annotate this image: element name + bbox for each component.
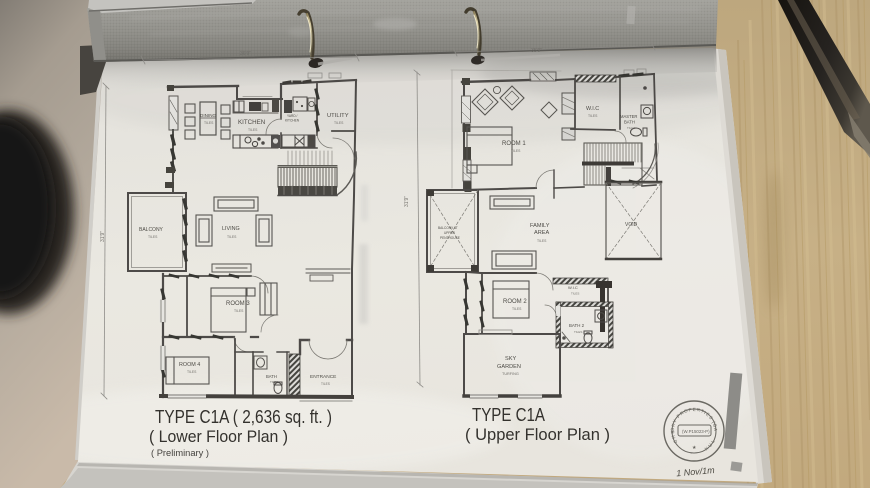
svg-text:31'9": 31'9" (404, 196, 410, 207)
svg-text:TURFING: TURFING (502, 372, 519, 376)
svg-text:( Preliminary ): ( Preliminary ) (151, 448, 209, 458)
svg-text:TILES: TILES (148, 235, 158, 239)
svg-text:ROOM 2: ROOM 2 (503, 299, 527, 305)
svg-text:BATH: BATH (624, 120, 635, 125)
svg-text:ROOM 3: ROOM 3 (226, 301, 250, 307)
svg-text:TILES: TILES (588, 114, 598, 118)
svg-text:TILES: TILES (334, 121, 344, 125)
svg-text:DINING: DINING (200, 113, 217, 118)
svg-text:TILES: TILES (187, 370, 197, 374)
svg-text:★: ★ (692, 445, 697, 451)
svg-text:FAMILY: FAMILY (530, 223, 550, 229)
svg-text:TILES: TILES (511, 149, 521, 153)
svg-text:ROOM 4: ROOM 4 (179, 362, 200, 368)
svg-text:UPPER: UPPER (444, 231, 456, 235)
svg-text:TILES: TILES (227, 235, 237, 239)
svg-text:UTILITY: UTILITY (327, 113, 349, 119)
svg-text:W.I.C: W.I.C (586, 106, 599, 112)
svg-text:KITCHEN: KITCHEN (285, 119, 300, 123)
svg-text:(W.P15023-P): (W.P15023-P) (682, 429, 710, 434)
svg-text:ROOM 1: ROOM 1 (502, 141, 526, 147)
svg-text:ENTRANCE: ENTRANCE (310, 374, 336, 380)
svg-text:TILES: TILES (321, 382, 330, 386)
svg-text:36'9": 36'9" (240, 51, 251, 57)
svg-text:SKY: SKY (505, 356, 516, 362)
svg-text:TILES: TILES (204, 121, 214, 125)
svg-text:W.I.C: W.I.C (568, 285, 578, 290)
svg-text:MASTER: MASTER (620, 114, 637, 119)
svg-text:BALCONY: BALCONY (139, 227, 164, 233)
svg-text:AREA: AREA (534, 230, 550, 236)
svg-text:YARD /: YARD / (287, 114, 298, 118)
svg-text:BATH: BATH (266, 374, 277, 379)
svg-text:PENTHOUSE: PENTHOUSE (440, 236, 460, 240)
svg-text:( Lower Floor Plan ): ( Lower Floor Plan ) (149, 427, 288, 446)
svg-text:BATH 2: BATH 2 (569, 323, 585, 328)
svg-text:VOID: VOID (625, 222, 638, 228)
svg-text:LIVING: LIVING (222, 226, 240, 232)
svg-text:BALCONY AT: BALCONY AT (438, 226, 458, 230)
svg-text:TYPE C1A: TYPE C1A (472, 405, 545, 425)
svg-text:( Upper Floor Plan ): ( Upper Floor Plan ) (465, 425, 610, 444)
svg-text:GARDEN: GARDEN (497, 364, 521, 370)
svg-text:TILES: TILES (574, 330, 582, 334)
svg-text:TYPE C1A ( 2,636 sq. ft. ): TYPE C1A ( 2,636 sq. ft. ) (155, 407, 332, 427)
svg-text:TILES: TILES (248, 128, 258, 132)
svg-text:TILES: TILES (571, 292, 579, 296)
svg-text:35'9": 35'9" (531, 48, 542, 54)
svg-text:KITCHEN: KITCHEN (238, 119, 265, 126)
svg-text:TILES: TILES (537, 239, 547, 243)
svg-text:31'9": 31'9" (100, 231, 106, 242)
svg-text:TILES: TILES (234, 309, 244, 313)
svg-text:TILES: TILES (512, 307, 522, 311)
